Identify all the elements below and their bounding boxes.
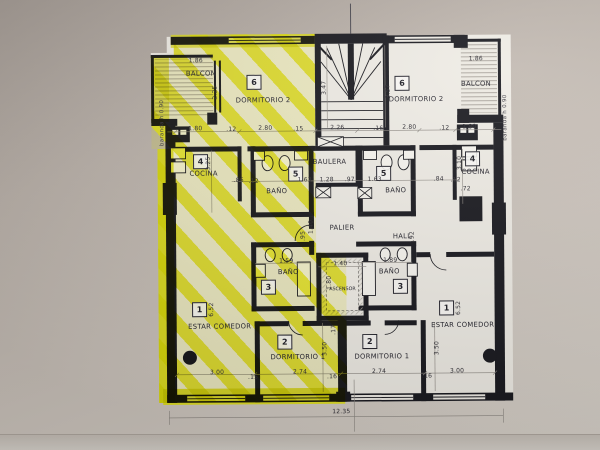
dim-label: 1.28 xyxy=(320,176,334,183)
dim-label: .12 xyxy=(451,176,461,183)
dim-label: 1.86 xyxy=(469,55,483,62)
room-label-palier: PALIER xyxy=(330,224,355,232)
dim-label: .12 xyxy=(439,124,449,131)
dim-label: .16 xyxy=(327,373,337,380)
room-number-estar-left: 1 xyxy=(192,302,207,317)
dim-label: .17 xyxy=(330,325,337,335)
dim-label: .12 xyxy=(249,178,259,185)
room-label-estar-left: ESTAR COMEDOR xyxy=(188,322,251,330)
room-label-ascensor: ASCENSOR xyxy=(329,287,355,292)
room-label-dorm2-left: DORMITORIO 2 xyxy=(236,96,291,104)
highlighter-stroke xyxy=(157,149,175,403)
dim-label: 1.63 xyxy=(298,176,312,183)
room-label-dorm1-right: DORMITORIO 1 xyxy=(354,352,409,360)
dim-label: 1.89 xyxy=(383,257,397,264)
room-label-bath-upper-right: BAÑO xyxy=(385,186,406,194)
dim-label-total-width: 12.35 xyxy=(332,408,350,415)
floor-plan: BALCON BALCON baranda h 0.90 baranda h 0… xyxy=(0,0,600,450)
dim-label: 2.80 xyxy=(258,125,272,132)
room-label-baulera: BAULERA xyxy=(313,158,347,166)
room-number-dorm1-right: 2 xyxy=(362,334,377,349)
dim-label: .12 xyxy=(226,126,236,133)
dim-label: 3.47 xyxy=(320,81,327,95)
dim-label: 2.25 xyxy=(212,85,219,99)
dim-label: 1.80 xyxy=(188,125,202,132)
room-label-cocina-right: COCINA xyxy=(461,168,489,176)
room-number-bath-lower-left: 3 xyxy=(261,280,276,295)
highlighter-stroke xyxy=(163,388,345,405)
room-label-dorm1-left: DORMITORIO 1 xyxy=(270,353,325,361)
dim-label: .16 xyxy=(373,125,383,132)
room-label-bath-lower-left: BAÑO xyxy=(278,268,299,276)
dim-label: 1.59 xyxy=(279,258,293,265)
dim-label: 1.40 xyxy=(333,260,347,267)
room-number-bath-lower-right: 3 xyxy=(393,279,408,294)
room-label-balcon-right: BALCON xyxy=(461,80,491,88)
room-number-dorm1-left: 2 xyxy=(277,335,292,350)
dim-label: 6.52 xyxy=(208,303,215,317)
dim-label: 3.50 xyxy=(321,342,328,356)
dim-label: 3.00 xyxy=(210,369,224,376)
railing-note-left: baranda h 0.90 xyxy=(159,100,165,146)
dim-label: 3.25 xyxy=(205,157,212,171)
dim-label: 1.40 xyxy=(307,220,314,234)
dim-label: 1.80 xyxy=(326,276,333,290)
room-number-cocina-right: 4 xyxy=(465,151,480,166)
dim-label: 2.74 xyxy=(372,368,386,375)
room-label-balcon-left: BALCON xyxy=(186,70,216,78)
dim-label: .95 xyxy=(300,231,307,241)
dim-label: 2.80 xyxy=(402,124,416,131)
railing-note-right: baranda h 0.90 xyxy=(502,94,508,140)
highlighter-stroke xyxy=(171,34,315,48)
room-number-estar-right: 1 xyxy=(439,300,454,315)
dim-label: 1.80 xyxy=(462,123,476,130)
room-label-dorm2-right: DORMITORIO 2 xyxy=(389,95,444,103)
dim-label: 2.74 xyxy=(293,368,307,375)
dim-label: .92 xyxy=(409,231,416,241)
dim-label: .15 xyxy=(248,374,258,381)
dim-label: .86 xyxy=(234,177,244,184)
floor-plan-photo: BALCON BALCON baranda h 0.90 baranda h 0… xyxy=(0,0,600,450)
dim-label: 3.57 xyxy=(385,84,392,98)
dim-label: 6.52 xyxy=(455,301,462,315)
dim-label: 2.26 xyxy=(330,124,344,131)
room-label-bath-upper-left: BAÑO xyxy=(266,187,287,195)
room-number-dorm2-left: 6 xyxy=(246,75,261,90)
dim-label: .97 xyxy=(345,176,355,183)
room-label-bath-lower-right: BAÑO xyxy=(379,267,400,275)
room-number-dorm2-right: 6 xyxy=(394,76,409,91)
dim-label: 3.10 xyxy=(456,156,463,170)
dim-label: .15 xyxy=(293,125,303,132)
dim-label: 1.86 xyxy=(189,57,203,64)
dim-label: 3.50 xyxy=(433,341,440,355)
room-label-cocina-left: COCINA xyxy=(189,170,217,178)
dim-label: 3.00 xyxy=(450,367,464,374)
room-label-estar-right: ESTAR COMEDOR xyxy=(431,321,494,329)
dim-label: .16 xyxy=(422,373,432,380)
dim-label: 1.63 xyxy=(368,176,382,183)
dim-label: .72 xyxy=(461,185,471,192)
dim-label: .84 xyxy=(434,175,444,182)
